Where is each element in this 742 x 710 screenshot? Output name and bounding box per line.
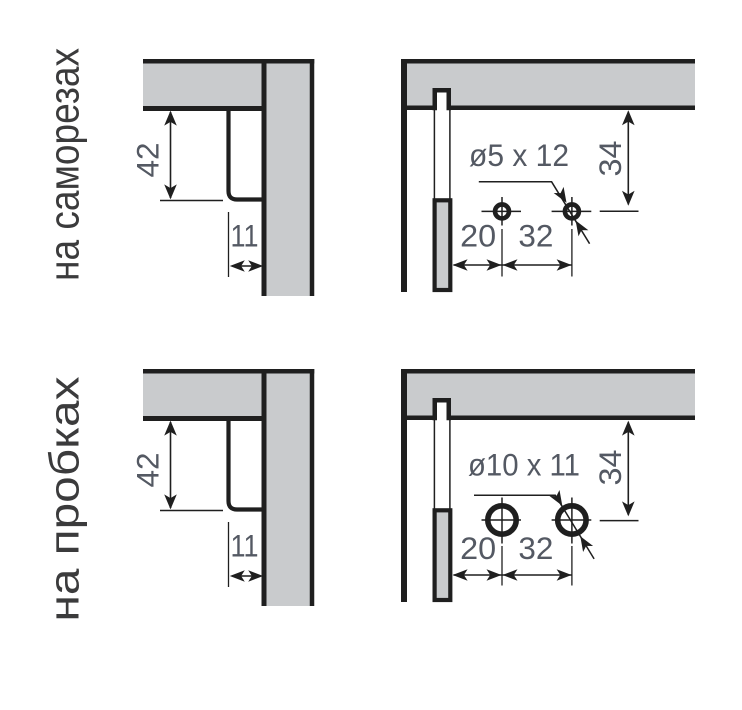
svg-text:32: 32 [518,218,553,254]
svg-text:20: 20 [460,530,496,566]
svg-text:ø10 x 11: ø10 x 11 [468,447,580,483]
svg-text:20: 20 [460,218,496,254]
svg-text:42: 42 [130,453,166,488]
svg-text:34: 34 [592,450,628,486]
svg-text:11: 11 [231,218,259,254]
svg-text:32: 32 [518,530,553,566]
svg-text:ø5 x 12: ø5 x 12 [469,137,569,173]
svg-text:11: 11 [231,528,259,564]
svg-text:42: 42 [130,143,166,178]
svg-text:на саморезах: на саморезах [41,48,88,281]
svg-text:на пробках: на пробках [41,376,88,621]
svg-text:34: 34 [592,141,628,177]
